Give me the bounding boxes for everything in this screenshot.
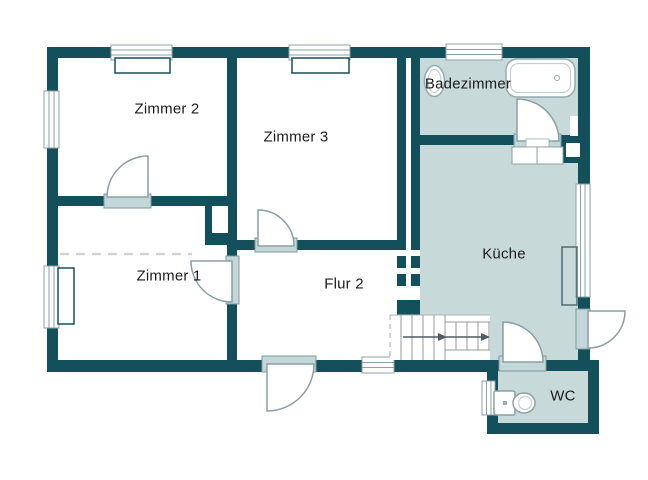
- label-zimmer-2: Zimmer 2: [135, 101, 200, 118]
- window-badezimmer-top: [446, 44, 502, 60]
- wall-stair-post: [397, 300, 420, 315]
- window-kueche-right: [576, 184, 590, 297]
- window-wc-left: [482, 381, 495, 415]
- label-badezimmer: Badezimmer: [425, 76, 511, 93]
- label-flur-2: Flur 2: [324, 276, 364, 293]
- window-sill: [115, 58, 170, 73]
- window-zimmer3-top: [289, 45, 350, 73]
- window-zimmer2-top: [111, 45, 172, 73]
- window-sill: [292, 58, 349, 73]
- door-entrance: [267, 364, 314, 411]
- door-zimmer2: [107, 156, 148, 197]
- window-hall-bottom: [362, 357, 394, 373]
- staircase: [390, 315, 490, 360]
- label-wc: WC: [550, 388, 575, 405]
- wall-double-left: [397, 58, 406, 250]
- floor-plan-canvas: Zimmer 2 Zimmer 3 Badezimmer Zimmer 1 Fl…: [0, 0, 648, 480]
- toilet-icon: [494, 391, 535, 415]
- wall-niche: [570, 116, 578, 136]
- floor-plan-drawing: [0, 0, 648, 480]
- chimney-void: [212, 206, 228, 233]
- wall-double-right: [411, 47, 420, 250]
- bathtub-icon: [506, 59, 575, 97]
- wall-dash-right-2: [411, 274, 420, 286]
- label-kueche: Küche: [482, 246, 526, 263]
- shaft-void: [566, 143, 580, 157]
- wall-dash-left-1: [397, 256, 406, 268]
- door-exterior-right: [588, 311, 625, 348]
- wall-dash-left-2: [397, 274, 406, 286]
- label-zimmer-1: Zimmer 1: [137, 268, 202, 285]
- window-sill: [58, 268, 74, 324]
- window-zimmer1-left: [44, 266, 74, 328]
- door-zimmer3: [258, 210, 294, 246]
- wall-dash-right-1: [411, 256, 420, 268]
- label-zimmer-3: Zimmer 3: [264, 129, 329, 146]
- window-zimmer2-left: [44, 91, 59, 148]
